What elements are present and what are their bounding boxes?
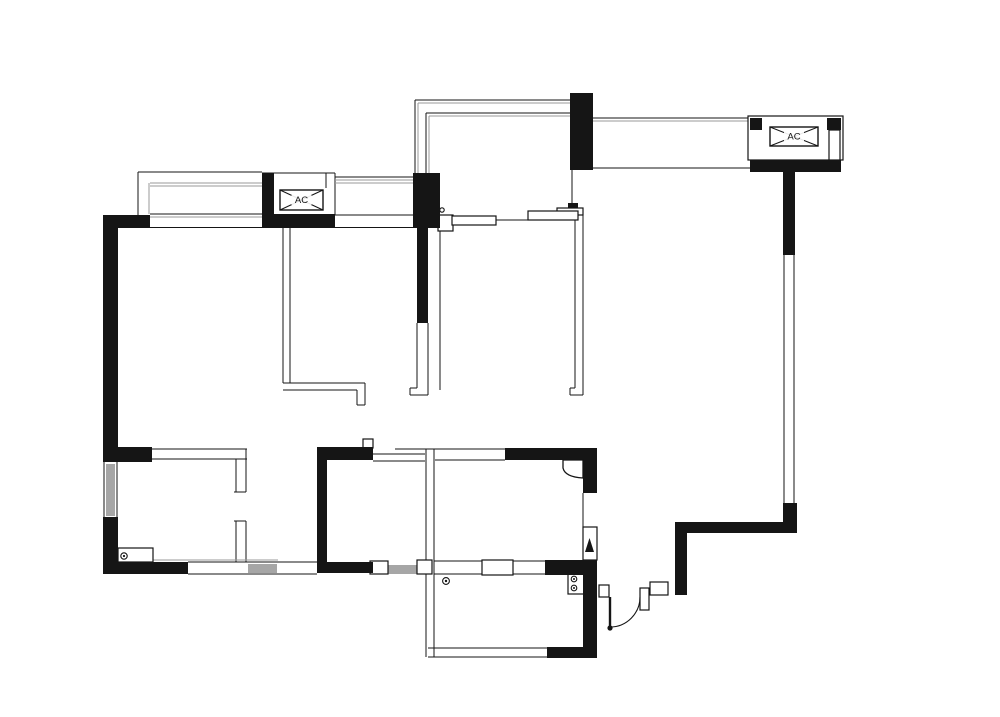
entry-door-arc bbox=[610, 597, 640, 627]
sliding-door-panel-2 bbox=[528, 211, 578, 220]
wall-solid bbox=[583, 448, 597, 493]
stove-burner-2-dot bbox=[573, 587, 575, 589]
wall-solid bbox=[675, 533, 687, 595]
ac-unit-top-right: AC bbox=[770, 127, 818, 146]
wall-solid bbox=[103, 215, 150, 228]
ac-label: AC bbox=[295, 195, 308, 206]
wall-solid bbox=[317, 447, 327, 573]
wall-solid bbox=[317, 562, 373, 573]
sliding-door-end-frame bbox=[438, 215, 453, 231]
fixture-cabinet bbox=[118, 548, 153, 562]
wall-nib bbox=[363, 439, 373, 448]
wall-solid bbox=[413, 173, 440, 228]
wall-solid bbox=[750, 160, 841, 172]
floor-plan-page: ACAC bbox=[0, 0, 1000, 717]
window-glass bbox=[106, 464, 115, 516]
stove-burner-1-dot bbox=[573, 578, 575, 580]
kitchen-pass-window bbox=[482, 560, 513, 575]
wall-solid bbox=[262, 214, 335, 228]
wall-solid bbox=[547, 647, 597, 658]
window-jamb-right bbox=[417, 560, 432, 574]
wall-solid bbox=[103, 562, 188, 574]
symbols bbox=[563, 460, 640, 628]
track-pin bbox=[440, 208, 444, 212]
ac-unit-top-left: AC bbox=[280, 190, 323, 210]
wall-solid bbox=[583, 573, 597, 657]
entry-jamb-top bbox=[650, 582, 668, 595]
wall-solid bbox=[545, 560, 597, 575]
wall-solid bbox=[750, 118, 762, 130]
window-glass bbox=[248, 564, 277, 573]
floor-drain-dot bbox=[445, 580, 447, 582]
glazing-lines bbox=[149, 103, 750, 572]
drain-dot-left bbox=[123, 555, 125, 557]
door-hinge-dot bbox=[607, 625, 612, 630]
floor-plan-canvas: ACAC bbox=[0, 0, 1000, 717]
wall-solid bbox=[570, 93, 593, 170]
wall-solid bbox=[675, 522, 797, 533]
wall-lines bbox=[104, 100, 794, 657]
ac-enclosure-side-panel bbox=[829, 130, 840, 160]
detail-boxes bbox=[118, 116, 843, 610]
ac-label: AC bbox=[787, 132, 800, 143]
corner-detail bbox=[563, 460, 583, 478]
wall-solid bbox=[783, 172, 795, 255]
wall-solid bbox=[262, 173, 274, 215]
wall-solid bbox=[103, 447, 152, 462]
wall-solid bbox=[417, 227, 428, 323]
solid-walls bbox=[103, 93, 841, 658]
wall-solid bbox=[103, 215, 118, 462]
entry-jamb-left bbox=[599, 585, 609, 597]
stove-fixture bbox=[568, 572, 584, 594]
entry-jamb-right bbox=[640, 588, 649, 610]
wall-solid bbox=[568, 203, 578, 208]
wall-solid bbox=[827, 118, 841, 130]
sliding-door-panel-1 bbox=[452, 216, 496, 225]
window-glass bbox=[388, 565, 417, 574]
